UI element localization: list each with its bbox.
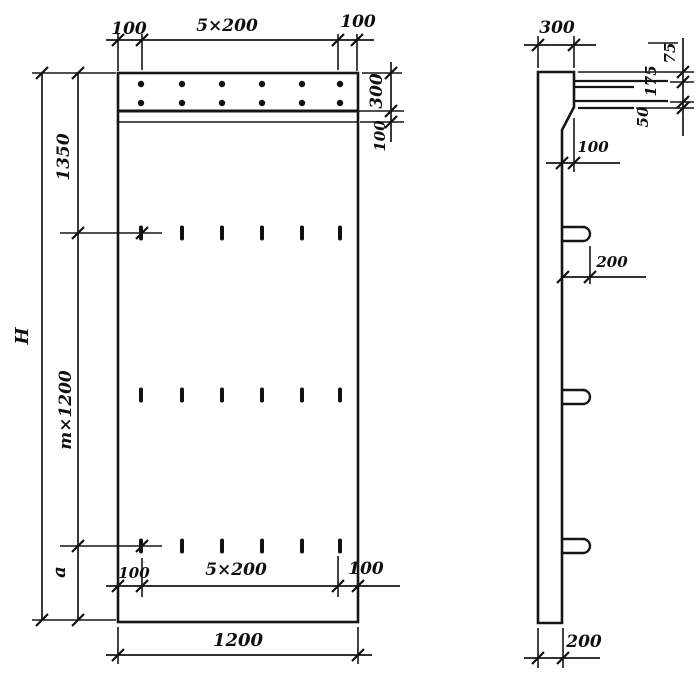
dim-label-loop-200: 200 xyxy=(595,253,628,271)
side-view: 300 75 175 50 100 200 xyxy=(524,18,694,668)
anchor-dot xyxy=(259,81,265,87)
slot-mark xyxy=(220,539,224,554)
anchor-dot xyxy=(299,100,305,106)
lifting-loop-arc xyxy=(583,390,590,404)
slot-mark xyxy=(180,539,184,554)
anchor-dot xyxy=(219,100,225,106)
dim-label-top-300: 300 xyxy=(539,18,575,38)
anchor-dot xyxy=(299,81,305,87)
dim-label-bottom-200: 200 xyxy=(565,632,602,652)
anchor-dots xyxy=(138,81,343,106)
dim-label-a: a xyxy=(49,566,70,578)
dim-label-overall-height: H xyxy=(12,327,33,346)
dim-label-inner-span: 5×200 xyxy=(205,560,267,580)
dim-label-ledge-100: 100 xyxy=(577,138,609,156)
dim-label-band-100: 100 xyxy=(371,120,389,152)
dim-label-175: 175 xyxy=(642,65,660,96)
slot-mark xyxy=(180,388,184,403)
panel-outline xyxy=(118,73,358,622)
slot-mark xyxy=(338,539,342,554)
lifting-loop-arc xyxy=(583,539,590,553)
dim-label-inner-right: 100 xyxy=(348,559,384,579)
slot-mark xyxy=(300,539,304,554)
dim-label-75: 75 xyxy=(661,43,679,64)
slot-mark xyxy=(180,226,184,241)
anchor-dot xyxy=(138,100,144,106)
slot-mark xyxy=(300,388,304,403)
slot-mark xyxy=(260,388,264,403)
anchor-dot xyxy=(259,100,265,106)
anchor-dot xyxy=(179,81,185,87)
slot-marks xyxy=(139,226,342,554)
side-top-dimension: 300 xyxy=(524,18,596,68)
dim-label-top-left: 100 xyxy=(111,19,147,39)
slot-mark xyxy=(300,226,304,241)
front-bottom-dimension: 1200 xyxy=(106,627,372,664)
slot-mark xyxy=(139,388,143,403)
dim-label-width-1200: 1200 xyxy=(213,630,264,651)
dim-label-top-right: 100 xyxy=(340,12,376,32)
slot-mark xyxy=(260,226,264,241)
side-ledge-dimension: 100 xyxy=(546,118,620,172)
dim-label-band-300: 300 xyxy=(367,73,387,109)
side-bottom-dimension: 200 xyxy=(524,628,602,668)
anchor-dot xyxy=(138,81,144,87)
slot-mark xyxy=(220,388,224,403)
dim-label-top-span: 5×200 xyxy=(196,16,258,36)
anchor-dot xyxy=(337,100,343,106)
front-inner-bottom-dimension: 100 5×200 100 xyxy=(106,556,400,597)
anchor-dot xyxy=(337,81,343,87)
slot-mark xyxy=(220,226,224,241)
wall-profile-outline xyxy=(538,72,574,623)
lifting-loop-arc xyxy=(583,227,590,241)
technical-drawing: 100 5×200 100 1350 H m×1200 a 300 100 xyxy=(0,0,700,700)
dim-label-1350: 1350 xyxy=(54,133,74,180)
slot-mark xyxy=(338,388,342,403)
slot-mark xyxy=(338,226,342,241)
front-left-dimensions: 1350 H m×1200 a xyxy=(12,73,162,620)
side-loop-dimension: 200 xyxy=(563,246,646,284)
dim-label-module: m×1200 xyxy=(56,370,76,450)
lifting-loops xyxy=(562,227,590,553)
slot-mark xyxy=(260,539,264,554)
dim-label-inner-left: 100 xyxy=(118,564,150,582)
anchor-dot xyxy=(179,100,185,106)
dim-label-50: 50 xyxy=(634,106,652,127)
drawing-sheet: 100 5×200 100 1350 H m×1200 a 300 100 xyxy=(0,0,700,700)
anchor-dot xyxy=(219,81,225,87)
front-view: 100 5×200 100 1350 H m×1200 a 300 100 xyxy=(12,12,404,664)
